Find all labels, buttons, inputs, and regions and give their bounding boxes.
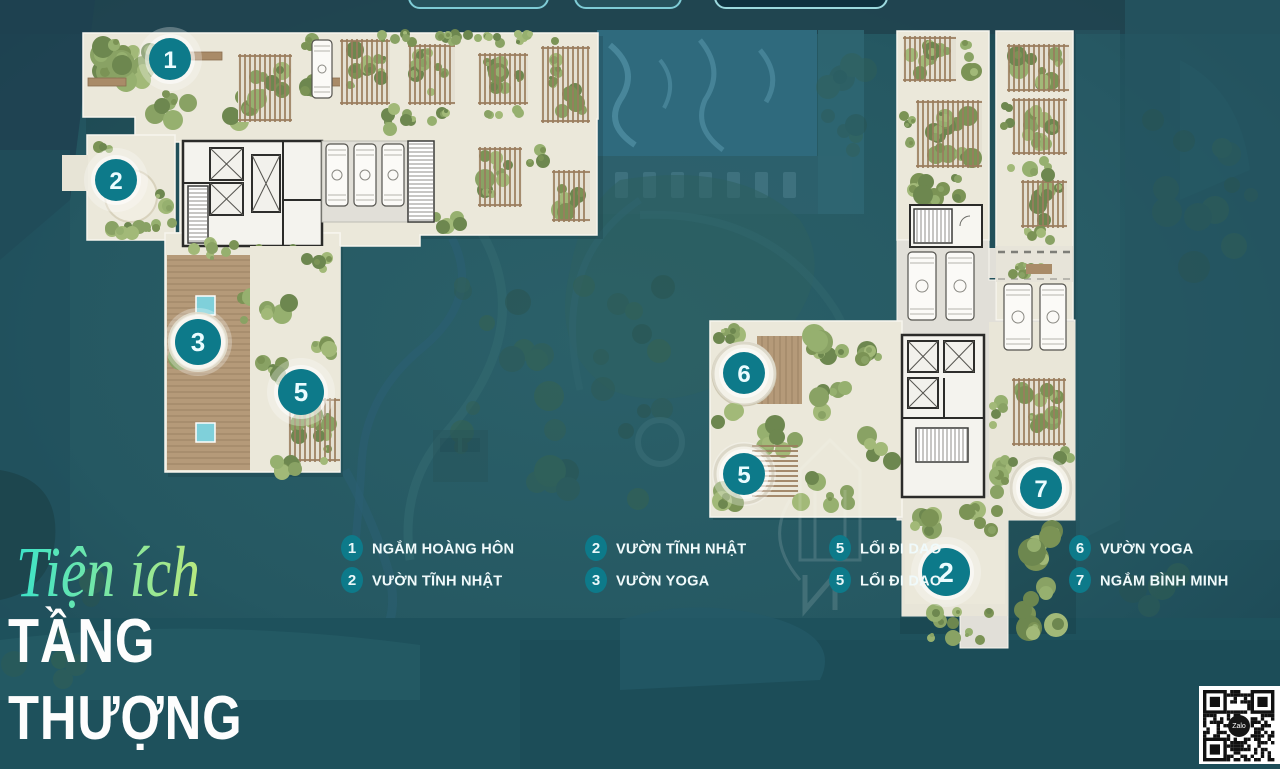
svg-text:Zalo: Zalo (1232, 723, 1246, 730)
svg-text:LỐI ĐI DẠO: LỐI ĐI DẠO (860, 572, 941, 590)
svg-text:NGẮM BÌNH MINH: NGẮM BÌNH MINH (1100, 572, 1228, 590)
svg-text:7: 7 (1034, 476, 1047, 503)
svg-text:VƯỜN YOGA: VƯỜN YOGA (1100, 540, 1194, 558)
svg-text:5: 5 (836, 572, 844, 589)
svg-text:6: 6 (737, 361, 750, 388)
svg-text:7: 7 (1076, 572, 1084, 589)
svg-text:1: 1 (348, 540, 356, 557)
svg-text:LỐI ĐI DẠO: LỐI ĐI DẠO (860, 540, 941, 558)
svg-text:6: 6 (1076, 540, 1084, 557)
svg-text:2: 2 (348, 572, 356, 589)
svg-text:3: 3 (191, 327, 205, 357)
svg-text:VƯỜN TĨNH NHẬT: VƯỜN TĨNH NHẬT (372, 572, 502, 590)
svg-text:2: 2 (109, 168, 122, 195)
svg-text:THƯỢNG: THƯỢNG (8, 684, 242, 753)
svg-text:1: 1 (163, 47, 176, 74)
svg-text:5: 5 (294, 377, 308, 407)
svg-text:TẦNG: TẦNG (8, 605, 155, 676)
svg-text:5: 5 (737, 462, 750, 489)
svg-text:NGẮM HOÀNG HÔN: NGẮM HOÀNG HÔN (372, 540, 514, 558)
svg-text:VƯỜN YOGA: VƯỜN YOGA (616, 572, 710, 590)
svg-text:2: 2 (592, 540, 600, 557)
svg-text:3: 3 (592, 572, 600, 589)
svg-text:Tiện ích: Tiện ích (16, 533, 200, 613)
svg-text:5: 5 (836, 540, 844, 557)
svg-text:VƯỜN TĨNH NHẬT: VƯỜN TĨNH NHẬT (616, 540, 746, 558)
